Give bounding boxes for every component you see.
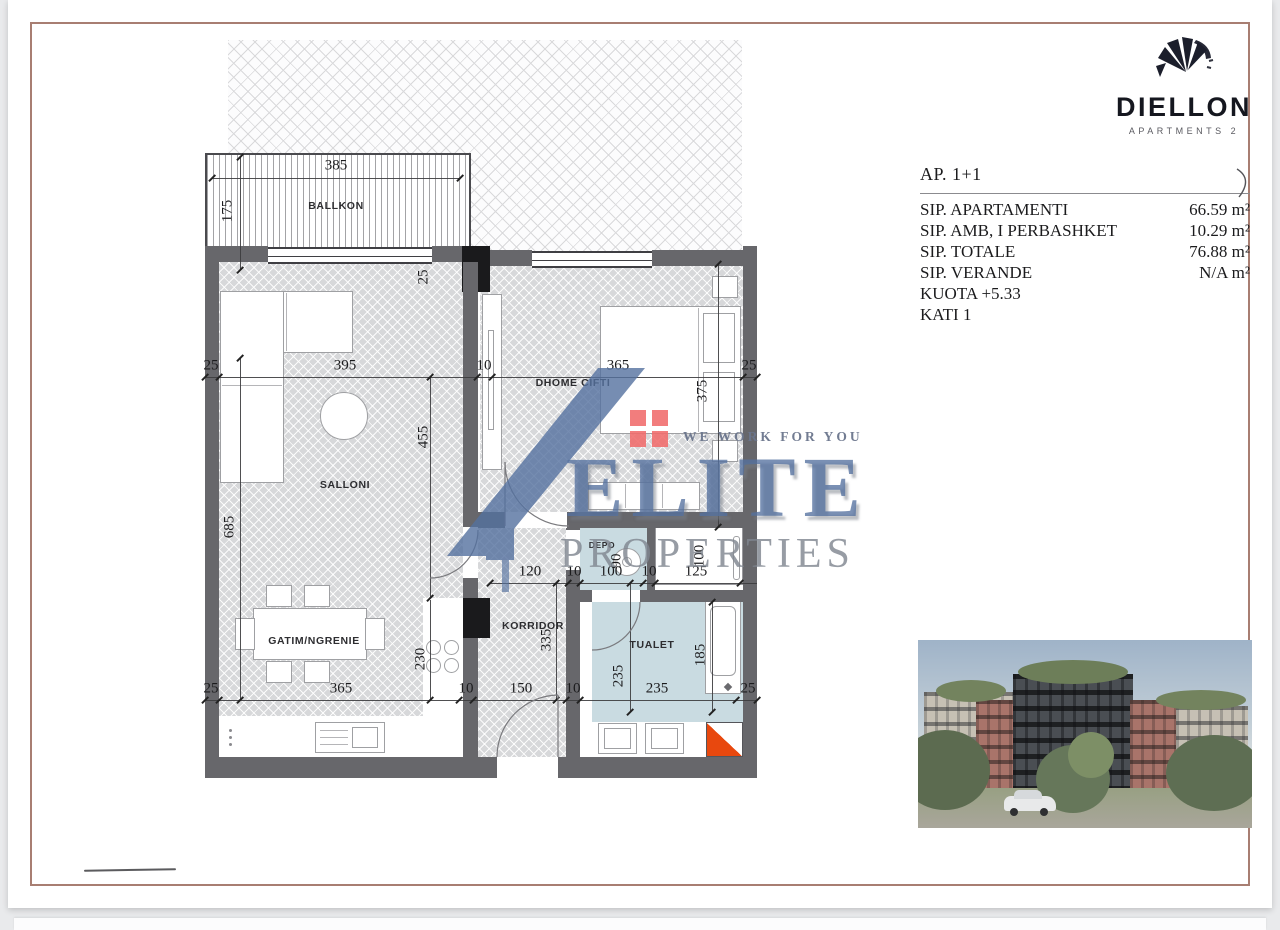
watermark-name: ELITE <box>566 444 869 530</box>
dimension-label: 385 <box>325 158 348 175</box>
info-row: SIP. AMB, I PERBASHKET10.29 m² <box>920 220 1250 241</box>
roof-greenery <box>936 680 1006 702</box>
dimension-label: 120 <box>519 564 542 581</box>
watermark-word: PROPERTIES <box>560 530 855 578</box>
info-label: SIP. AMB, I PERBASHKET <box>920 220 1117 241</box>
dimension-label: 365 <box>607 358 630 375</box>
sink-line <box>320 737 348 738</box>
door-opening-tualet <box>592 590 640 602</box>
next-page-edge <box>14 918 1266 930</box>
dimension-label: 335 <box>539 629 556 652</box>
dim-line <box>240 157 241 270</box>
dimension-label: 685 <box>222 516 239 539</box>
foreground-tree <box>1068 732 1114 778</box>
dimension-label: 230 <box>413 648 430 671</box>
dim-line <box>490 583 757 584</box>
dimension-label: 150 <box>510 681 533 698</box>
info-rows: SIP. APARTAMENTI66.59 m²SIP. AMB, I PERB… <box>920 199 1250 283</box>
sink-basin <box>352 727 378 748</box>
wall <box>490 250 532 266</box>
column <box>463 598 490 638</box>
stove-burner <box>444 658 459 673</box>
stove-burner <box>444 640 459 655</box>
bathtub-inner <box>710 606 736 676</box>
info-label: SIP. TOTALE <box>920 241 1015 262</box>
dimension-label: 455 <box>416 426 433 449</box>
brand-block: DIELLON APARTMENTS 2 <box>1110 36 1258 136</box>
dim-line <box>240 358 241 700</box>
info-value: 10.29 m² <box>1189 220 1250 241</box>
brand-subtitle: APARTMENTS 2 <box>1110 126 1258 136</box>
dots <box>229 736 232 739</box>
room-label: TUALET <box>629 639 674 651</box>
balcony-window <box>268 247 432 264</box>
info-value: 76.88 m² <box>1189 241 1250 262</box>
shaft-marker <box>706 722 743 757</box>
page: { "brand": { "name": "DIELLON", "sub": "… <box>0 0 1280 930</box>
apartment-title: AP. 1+1 <box>920 164 1250 185</box>
room-label: BALLKON <box>308 200 364 212</box>
roof-greenery <box>1156 690 1246 710</box>
car-wheel <box>1040 808 1048 816</box>
foreground-tree <box>1166 735 1252 811</box>
room-label: DHOME CIFTI <box>536 377 611 389</box>
info-row: SIP. APARTAMENTI66.59 m² <box>920 199 1250 220</box>
chair <box>266 585 292 607</box>
bed-line <box>698 308 699 432</box>
info-value: 66.59 m² <box>1189 199 1250 220</box>
title-underline <box>920 193 1250 194</box>
dim-line <box>212 178 460 179</box>
dots <box>229 729 232 732</box>
dimension-label: 10 <box>459 681 474 698</box>
sofa-chaise <box>220 291 284 483</box>
dimension-label: 25 <box>416 270 433 285</box>
nightstand <box>712 276 738 298</box>
entrance-opening <box>497 757 558 778</box>
info-label: SIP. APARTAMENTI <box>920 199 1068 220</box>
dimension-label: 10 <box>566 681 581 698</box>
wall <box>432 246 462 262</box>
info-value: N/A m² <box>1199 262 1250 283</box>
wall <box>652 250 757 266</box>
wall <box>205 757 757 778</box>
diellon-logo-icon <box>1152 36 1216 86</box>
dimension-label: 185 <box>693 644 710 667</box>
chair <box>235 618 255 650</box>
pillow <box>703 313 735 363</box>
info-label: SIP. VERANDE <box>920 262 1032 283</box>
dimension-label: 10 <box>477 358 492 375</box>
info-row: SIP. VERANDEN/A m² <box>920 262 1250 283</box>
chair <box>304 661 330 683</box>
dimension-label: 235 <box>646 681 669 698</box>
chair <box>266 661 292 683</box>
coffee-table <box>320 392 368 440</box>
dimension-label: 25 <box>204 681 219 698</box>
dimension-label: 365 <box>330 681 353 698</box>
dimension-label: 175 <box>220 200 237 223</box>
apartment-info-panel: AP. 1+1 SIP. APARTAMENTI66.59 m²SIP. AMB… <box>920 164 1250 325</box>
door-opening-salloni <box>463 527 478 578</box>
dim-line <box>205 377 757 378</box>
info-row: SIP. TOTALE76.88 m² <box>920 241 1250 262</box>
chair <box>304 585 330 607</box>
sink-line <box>320 744 348 745</box>
car-cabin <box>1014 790 1042 799</box>
dim-line <box>430 377 431 598</box>
dimension-label: 375 <box>695 380 712 403</box>
dim-line <box>430 600 431 700</box>
kuota-line: KUOTA +5.33 <box>920 283 1250 304</box>
car-wheel <box>1010 808 1018 816</box>
washbasin-inner <box>651 728 678 749</box>
dimension-label: 25 <box>742 358 757 375</box>
sofa-cushion-line2 <box>222 385 282 386</box>
dim-line <box>205 700 757 701</box>
washbasin-inner <box>604 728 631 749</box>
door-opening-bedroom <box>505 512 567 528</box>
sink-line <box>320 730 348 731</box>
room-label: SALLONI <box>320 479 370 491</box>
dining-table <box>253 608 367 660</box>
wall <box>205 246 268 262</box>
dim-line <box>712 602 713 712</box>
dots <box>229 743 232 746</box>
kati-line: KATI 1 <box>920 304 1250 325</box>
sofa-cushion-line <box>286 293 287 351</box>
bedroom-window <box>532 251 652 268</box>
room-label: GATIM/NGRENIE <box>268 635 360 647</box>
brand-name: DIELLON <box>1110 92 1258 123</box>
dimension-label: 395 <box>334 358 357 375</box>
dimension-label: 25 <box>204 358 219 375</box>
dim-line <box>556 583 557 700</box>
dimension-label: 25 <box>741 681 756 698</box>
chair <box>365 618 385 650</box>
building-render-photo <box>918 640 1252 828</box>
dimension-label: 235 <box>611 665 628 688</box>
roof-greenery <box>1018 660 1128 684</box>
